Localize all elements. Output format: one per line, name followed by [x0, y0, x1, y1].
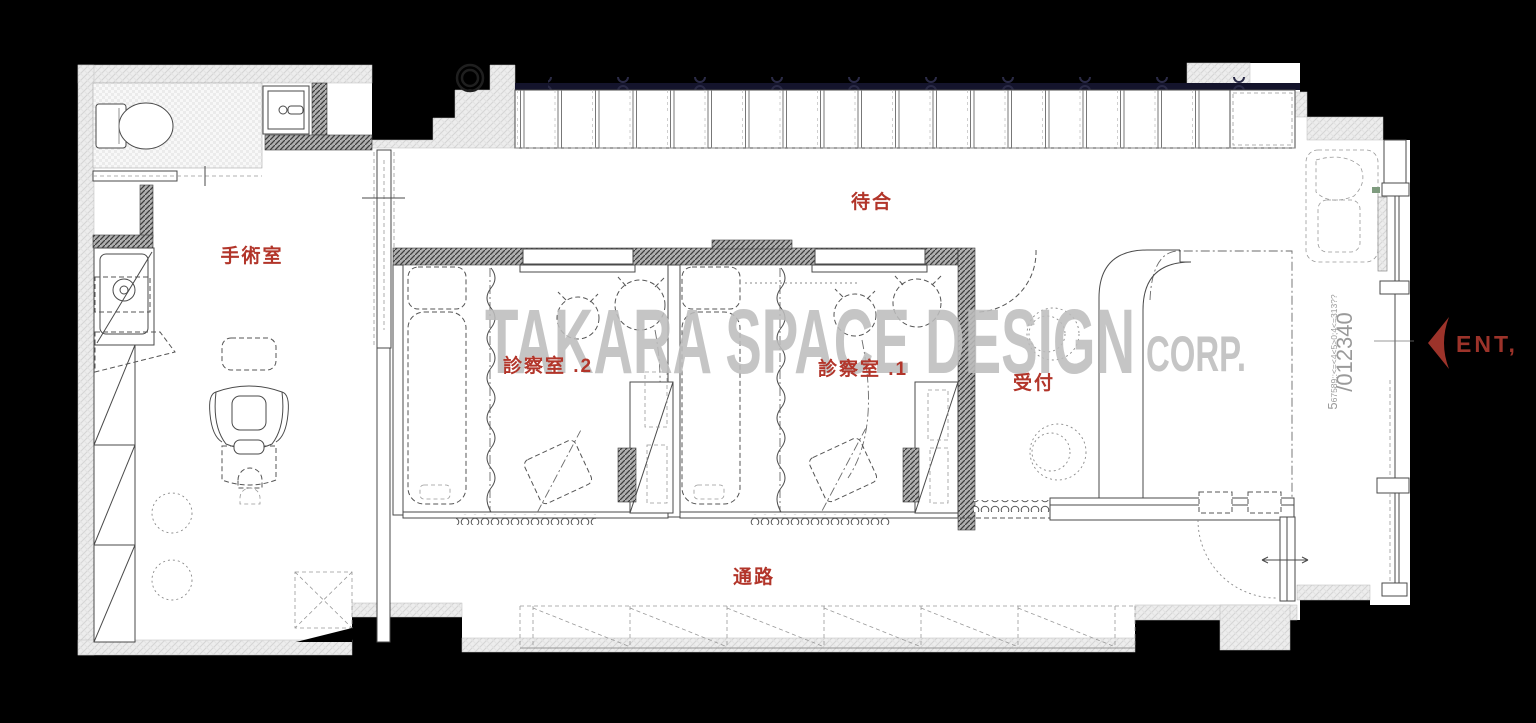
label-waiting: 待合: [851, 190, 893, 213]
exam2-door-opening: [523, 249, 633, 264]
green-marker: [1372, 187, 1380, 193]
mullion-cap: [1382, 183, 1409, 196]
signage-panel: [1378, 197, 1387, 271]
mullion-cap: [1377, 478, 1409, 493]
waiting-north-glazing: [515, 77, 1300, 148]
floor-plan-canvas: TAKARA SPACE DESIGN CORP. 手術室 待合 診察室 .2 …: [0, 0, 1536, 723]
label-corridor: 通路: [733, 565, 775, 588]
label-reception: 受付: [1013, 371, 1055, 394]
entrance-label: ENT,: [1456, 331, 1518, 357]
curtain-scallop: [974, 500, 1052, 512]
label-surgery: 手術室: [220, 244, 283, 267]
exam2-door-leaf: [520, 265, 635, 272]
wall-transom: [712, 240, 792, 249]
exam1-door-opening: [815, 249, 925, 264]
label-exam1: 診察室 .1: [818, 357, 908, 380]
label-exam2: 診察室 .2: [503, 354, 593, 377]
hand-sink-icon: [263, 86, 309, 134]
mullion-cap: [1382, 583, 1407, 596]
waiting-chair: [1248, 492, 1281, 513]
exam-west-wall: [393, 265, 403, 515]
mullion-cap: [1380, 281, 1409, 294]
hanger-rings: [548, 77, 1248, 90]
toilet-icon: [96, 103, 173, 149]
curtain-scallop: [750, 514, 890, 525]
waiting-chair: [1199, 492, 1232, 513]
exam1-door-leaf: [812, 265, 927, 272]
watermark-corp: CORP.: [1146, 326, 1246, 382]
curtain-scallop: [456, 514, 596, 525]
window-mullions: [515, 90, 1230, 148]
